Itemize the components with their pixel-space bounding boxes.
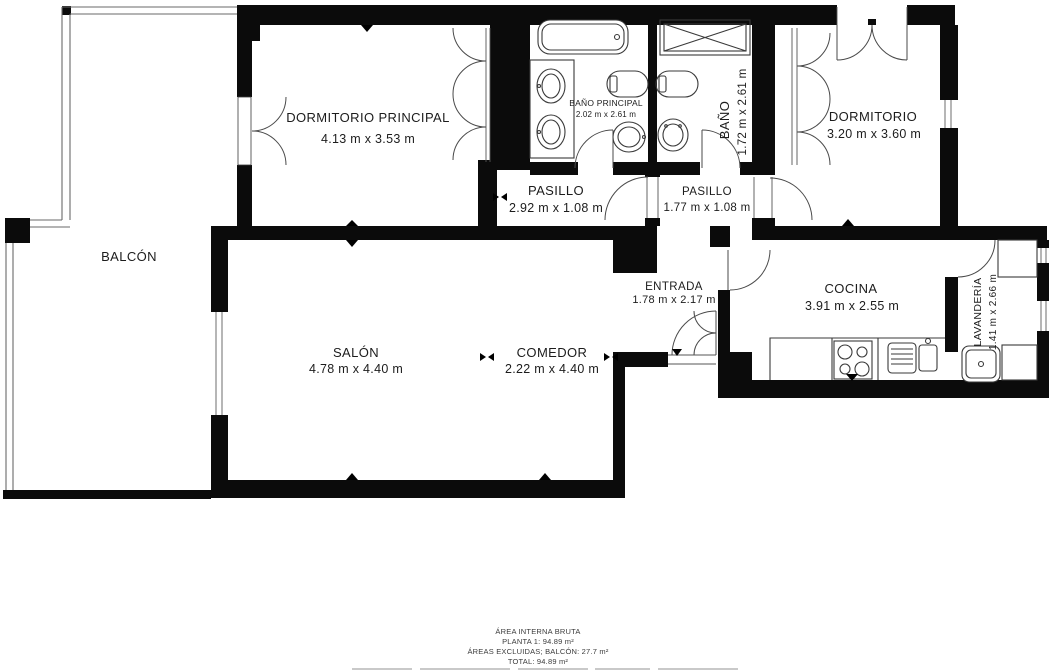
dimension-ticks	[346, 25, 858, 480]
floorplan-drawing: DORMITORIO PRINCIPAL 4.13 m x 3.53 m BAÑ…	[0, 0, 1064, 671]
laundry-shelf-icon	[998, 240, 1037, 380]
room-dims: 2.02 m x 2.61 m	[576, 110, 636, 119]
master-toilet-icon	[607, 71, 648, 97]
room-name: DORMITORIO PRINCIPAL	[286, 110, 450, 125]
laundry-window-top	[1041, 248, 1046, 263]
double-vanity-icon	[530, 60, 574, 158]
bedroom-closet-doors	[792, 28, 830, 165]
floorplan-page: DORMITORIO PRINCIPAL 4.13 m x 3.53 m BAÑ…	[0, 0, 1064, 671]
room-dims: 3.20 m x 3.60 m	[827, 127, 921, 141]
room-label-comedor: COMEDOR 2.22 m x 4.40 m	[505, 345, 599, 376]
washer-icon	[962, 346, 1000, 382]
room-name: SALÓN	[333, 345, 379, 360]
room-dims: 3.91 m x 2.55 m	[805, 299, 899, 313]
area-summary: ÁREA INTERNA BRUTA PLANTA 1: 94.89 m² ÁR…	[467, 627, 608, 666]
room-dims: 1.72 m x 2.61 m	[737, 69, 749, 156]
room-label-pasillo-2: PASILLO 1.77 m x 1.08 m	[664, 186, 751, 214]
room-label-bano: BAÑO 1.72 m x 2.61 m	[717, 69, 749, 156]
room-name: BALCÓN	[101, 249, 157, 264]
room-label-bano-principal: BAÑO PRINCIPAL 2.02 m x 2.61 m	[569, 98, 643, 119]
master-closet-doors	[453, 28, 490, 162]
room-label-balcon: BALCÓN	[101, 249, 157, 264]
room-dims: 1.41 m x 2.66 m	[988, 274, 999, 350]
room-name: LAVANDERÍA	[971, 278, 984, 347]
room-name: PASILLO	[528, 183, 584, 198]
room-name: COMEDOR	[517, 345, 588, 360]
bidet-icon	[613, 122, 646, 152]
area-summary-line2: PLANTA 1: 94.89 m²	[502, 637, 574, 646]
balcony-window	[216, 312, 222, 415]
area-summary-line4: TOTAL: 94.89 m²	[508, 657, 569, 666]
room-dims: 2.92 m x 1.08 m	[509, 201, 603, 215]
laundry-window-bottom	[1041, 301, 1046, 331]
room-name: DORMITORIO	[829, 109, 917, 124]
kitchen-door	[728, 250, 770, 290]
room-label-dormitorio: DORMITORIO 3.20 m x 3.60 m	[827, 109, 921, 141]
room-dims: 4.13 m x 3.53 m	[321, 132, 415, 146]
bedroom-window	[945, 100, 951, 128]
room-dims: 1.78 m x 2.17 m	[632, 294, 715, 306]
master-balcony-door	[238, 97, 286, 165]
entrance-door	[668, 311, 716, 364]
room-name: PASILLO	[682, 186, 732, 198]
toilet-icon	[656, 71, 698, 97]
stove-icon	[834, 341, 872, 379]
room-name: COCINA	[825, 281, 878, 296]
room-label-salon: SALÓN 4.78 m x 4.40 m	[309, 345, 403, 376]
room-dims: 1.77 m x 1.08 m	[664, 202, 751, 214]
bedroom-french-window	[837, 7, 907, 60]
bedroom-door	[754, 177, 812, 220]
kitchen-sink-icon	[888, 339, 937, 374]
room-label-pasillo-1: PASILLO 2.92 m x 1.08 m	[509, 183, 603, 215]
room-name: BAÑO	[717, 101, 732, 139]
master-bath-door	[575, 130, 613, 168]
room-name: ENTRADA	[645, 281, 703, 293]
room-dims: 4.78 m x 4.40 m	[309, 362, 403, 376]
room-label-lavanderia: LAVANDERÍA 1.41 m x 2.66 m	[971, 274, 999, 350]
room-name: BAÑO PRINCIPAL	[569, 98, 643, 108]
hallway-door	[605, 177, 658, 220]
room-dims: 2.22 m x 4.40 m	[505, 362, 599, 376]
bathtub-icon	[538, 20, 628, 54]
shower-icon	[660, 20, 750, 55]
area-summary-line1: ÁREA INTERNA BRUTA	[495, 627, 580, 636]
room-label-entrada: ENTRADA 1.78 m x 2.17 m	[632, 281, 715, 306]
blurred-footnote	[352, 668, 738, 670]
walls	[3, 5, 1049, 499]
area-summary-line3: ÁREAS EXCLUIDAS; BALCÓN: 27.7 m²	[467, 647, 608, 656]
bath-sink-icon	[658, 119, 688, 151]
laundry-door	[958, 240, 995, 277]
room-label-cocina: COCINA 3.91 m x 2.55 m	[805, 281, 899, 313]
entry-closet-doors	[694, 311, 716, 355]
room-label-dormitorio-principal: DORMITORIO PRINCIPAL 4.13 m x 3.53 m	[286, 110, 450, 146]
